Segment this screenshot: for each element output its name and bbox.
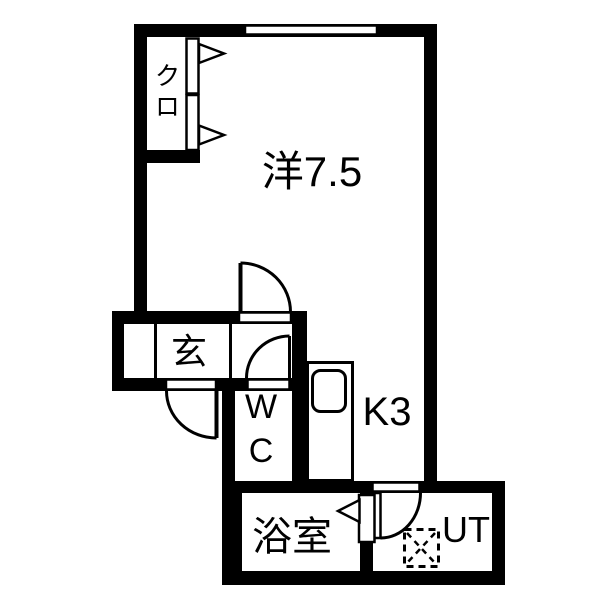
door-bathroom-arrow-icon xyxy=(338,500,360,522)
door-toilet-arc xyxy=(247,336,290,378)
room-label-closet: クロ xyxy=(153,62,179,124)
door-bathroom-folding xyxy=(338,495,375,542)
wall-closet-bottom xyxy=(134,150,200,163)
room-label-toilet: WC xyxy=(244,388,278,476)
room-label-western-room: 洋7.5 xyxy=(262,151,362,193)
wall-hall-kitchen xyxy=(292,311,307,481)
closet-door-panel-bottom xyxy=(187,95,199,150)
kitchen-sink xyxy=(313,371,346,412)
door-utility-arc xyxy=(381,493,421,538)
floor-plan: クロ 洋7.5 玄 WC K3 浴室 UT xyxy=(0,0,600,600)
door-main-room xyxy=(239,263,291,323)
kitchen-counter xyxy=(308,363,353,481)
door-main-room-arc xyxy=(241,263,291,312)
door-front-entrance-arc xyxy=(167,391,217,438)
wall-right xyxy=(424,24,437,481)
closet-door-arrow-bottom-icon xyxy=(199,126,224,145)
door-front-entrance-threshold xyxy=(166,380,216,390)
door-front-entrance xyxy=(166,380,217,439)
washing-machine-space xyxy=(405,530,439,567)
wall-lower-right xyxy=(492,481,505,585)
window xyxy=(245,26,377,35)
door-bathroom-panel xyxy=(359,495,375,542)
room-label-entrance: 玄 xyxy=(171,334,207,370)
closet-doors xyxy=(187,39,225,151)
wall-left xyxy=(134,24,147,311)
wall-lower-bottom xyxy=(222,571,505,585)
door-toilet xyxy=(247,336,290,390)
door-utility xyxy=(373,483,421,539)
wall-toilet-left xyxy=(222,391,235,481)
closet-door-panel-top xyxy=(187,39,199,94)
floor-plan-canvas xyxy=(0,0,600,600)
closet-door-arrow-top-icon xyxy=(199,44,224,63)
room-label-utility: UT xyxy=(442,512,490,548)
wall-lower-left xyxy=(222,481,242,585)
door-main-room-threshold xyxy=(239,313,291,323)
room-label-bathroom: 浴室 xyxy=(252,517,332,557)
room-label-kitchen: K3 xyxy=(363,392,412,432)
door-utility-threshold xyxy=(373,483,420,492)
